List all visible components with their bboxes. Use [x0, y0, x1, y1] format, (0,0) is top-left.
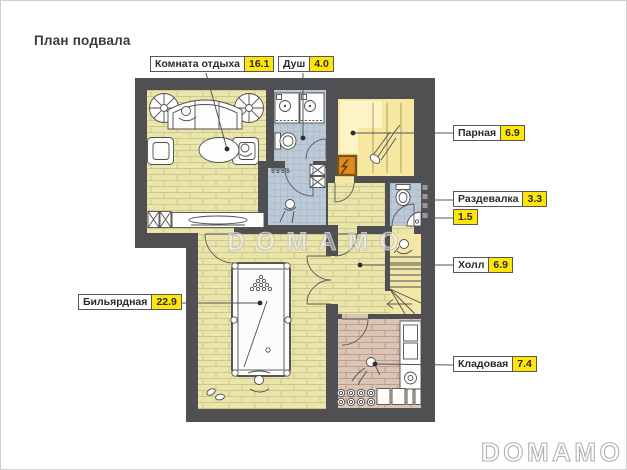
- room-label-steam: Парная6.9: [453, 125, 525, 141]
- area-value: 7.4: [512, 356, 537, 372]
- room-label-storage: Кладовая7.4: [453, 356, 537, 372]
- toilet-icon-wc: [396, 185, 410, 206]
- armchair-left: [148, 138, 174, 165]
- room-name: Комната отдыха: [150, 56, 244, 72]
- area-value: 1.5: [453, 209, 478, 225]
- room-name: Душ: [278, 56, 309, 72]
- area-value: 4.0: [309, 56, 334, 72]
- room-dressing-floor: [328, 183, 385, 226]
- room-label-dressing: Раздевалка3.3: [453, 191, 547, 207]
- area-value: 22.9: [151, 294, 181, 310]
- tv-cabinet: [148, 212, 264, 228]
- toilet-icon: [275, 133, 296, 149]
- room-name: Бильярдная: [78, 294, 151, 310]
- area-value: 16.1: [244, 56, 274, 72]
- room-name: Раздевалка: [453, 191, 522, 207]
- room-label-billiard: Бильярдная22.9: [78, 294, 182, 310]
- page-title: План подвала: [34, 33, 131, 48]
- room-name: Холл: [453, 257, 488, 273]
- area-value: 6.9: [488, 257, 513, 273]
- doorway-storage: [342, 314, 368, 319]
- floor-plan-page: DOMAMO DOMAMO План подвала Комната отдых…: [0, 0, 627, 470]
- brand-logo: DOMAMO: [481, 437, 623, 467]
- room-label-wc: 1.5: [453, 209, 478, 225]
- stove-icon: [338, 156, 356, 175]
- billiard-table: [231, 263, 291, 376]
- storage-shelving: [400, 321, 421, 389]
- coffee-table: [199, 138, 239, 163]
- room-name: Кладовая: [453, 356, 512, 372]
- shower-cabin-left: [275, 93, 299, 123]
- area-value: 6.9: [500, 125, 525, 141]
- room-name: Парная: [453, 125, 500, 141]
- doorway-steam: [335, 176, 354, 183]
- room-label-shower: Душ4.0: [278, 56, 334, 72]
- shower-cabin-right: [300, 93, 324, 123]
- watermark-text: DOMAMO: [227, 228, 410, 256]
- room-label-hall: Холл6.9: [453, 257, 513, 273]
- room-label-rest: Комната отдыха16.1: [150, 56, 274, 72]
- area-value: 3.3: [522, 191, 547, 207]
